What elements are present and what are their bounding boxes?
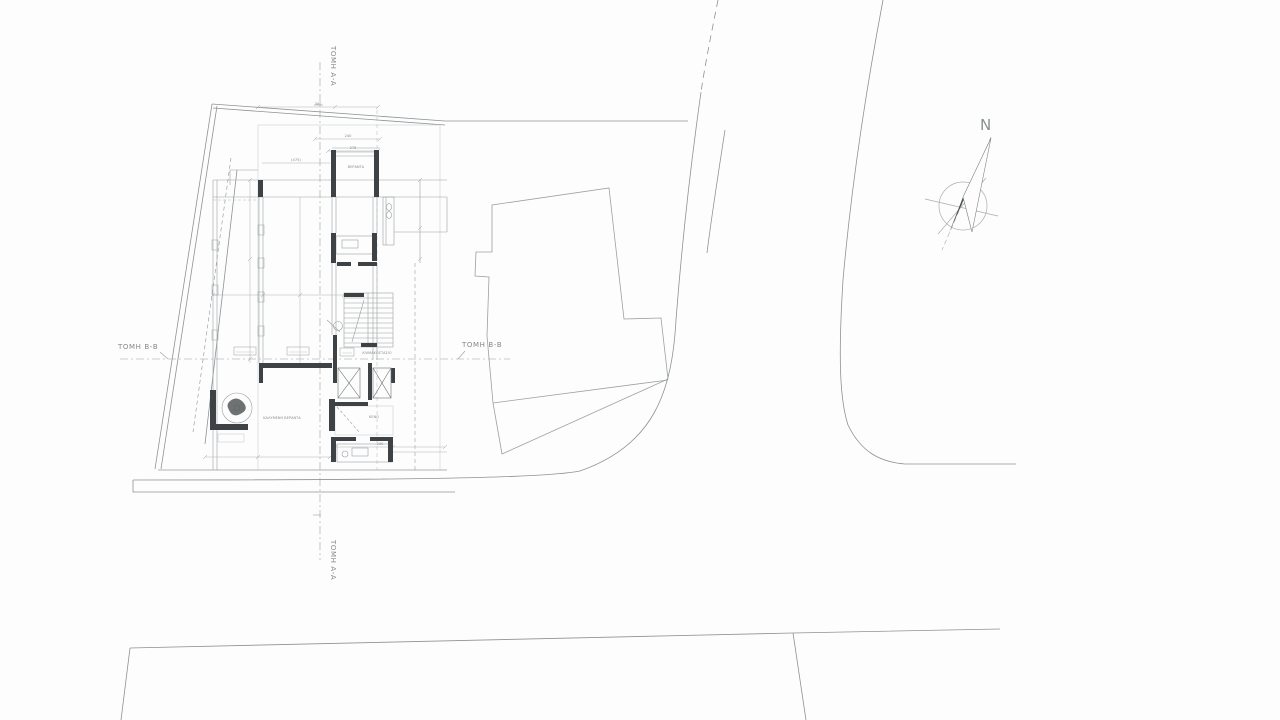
north-label: N <box>980 116 991 134</box>
dim-label: 240 <box>377 442 385 446</box>
dim-label: 240 <box>345 134 353 138</box>
section-aa-top-label: ΤΟΜΗ Α-Α <box>329 45 337 86</box>
section-aa-bottom-label: ΤΟΜΗ Α-Α <box>329 539 337 580</box>
room-label-covered-veranda: ΚΑΛΥΜΕΝΗ ΒΕΡΑΝΤΑ <box>263 416 301 420</box>
section-bb-right-label: ΤΟΜΗ Β-Β <box>461 341 502 349</box>
north-compass: N <box>925 116 998 250</box>
room-label-void: ΚΕΝΟ <box>369 415 379 419</box>
dim-label: (475) <box>291 158 301 162</box>
floor-plan-thin-lines <box>158 110 447 470</box>
road-lines <box>121 0 1016 720</box>
dim-label: 275 <box>350 146 357 150</box>
neighbour-building-outline <box>475 188 668 454</box>
room-label-stairwell: ΚΛΙΜΑΚΟΣΤΑΣΙΟ <box>362 351 392 355</box>
dim-label: 300 <box>315 102 323 106</box>
section-lines: ΤΟΜΗ Α-Α ΤΟΜΗ Α-Α ΤΟΜΗ Β-Β ΤΟΜΗ Β-Β <box>117 45 510 580</box>
room-label-veranda: ΒΕΡΑΝΤΑ <box>348 165 365 169</box>
section-bb-left-label: ΤΟΜΗ Β-Β <box>117 343 158 351</box>
site-plan-page: ΤΟΜΗ Α-Α ΤΟΜΗ Α-Α ΤΟΜΗ Β-Β ΤΟΜΗ Β-Β N <box>0 0 1280 720</box>
site-plan-drawing: ΤΟΜΗ Α-Α ΤΟΜΗ Α-Α ΤΟΜΗ Β-Β ΤΟΜΗ Β-Β N <box>0 0 1280 720</box>
plan-text-labels: ΒΕΡΑΝΤΑ ΚΛΙΜΑΚΟΣΤΑΣΙΟ ΚΑΛΥΜΕΝΗ ΒΕΡΑΝΤΑ Κ… <box>263 102 392 446</box>
